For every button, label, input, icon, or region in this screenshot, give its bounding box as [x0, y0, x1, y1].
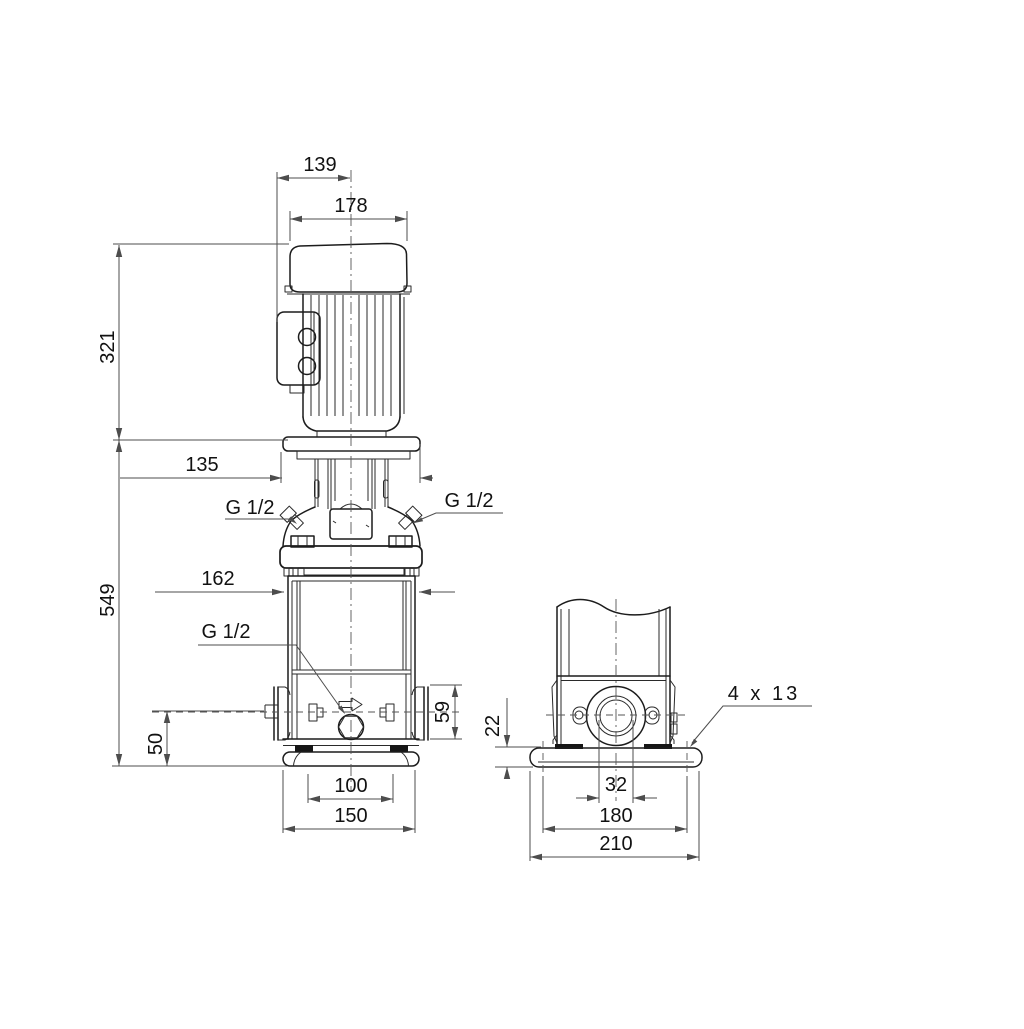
dim-139-label: 139 — [303, 154, 336, 176]
plug-label-drain: G 1/2 — [202, 621, 251, 643]
break-line — [557, 600, 670, 615]
dim-549-label: 549 — [97, 583, 119, 616]
dim-162-label: 162 — [201, 568, 234, 590]
motor-stool-plate — [283, 437, 420, 451]
dim-59-label: 59 — [432, 701, 454, 723]
dim-4x13-label: 4 x 13 — [728, 683, 800, 705]
port-flange-left — [265, 687, 290, 740]
plug-label-right: G 1/2 — [445, 490, 494, 512]
dim-178-label: 178 — [334, 195, 367, 217]
motor-bottom-bell — [303, 417, 400, 431]
chamber-sleeve — [288, 568, 415, 739]
front-view-pump-outline — [152, 170, 462, 792]
leader-arrow-bolt-hole — [690, 739, 697, 747]
dim-32-label: 32 — [605, 774, 627, 796]
dim-180-label: 180 — [599, 805, 632, 827]
side-plug-left — [309, 704, 317, 721]
cable-entry-hole-bottom — [299, 358, 316, 375]
side-plug-right — [386, 704, 394, 721]
dim-210-label: 210 — [599, 833, 632, 855]
drawing-canvas: 139 178 321 549 135 162 G 1/2 G 1/2 G — [0, 0, 1024, 1024]
dim-135-label: 135 — [185, 454, 218, 476]
dim-100-label: 100 — [334, 775, 367, 797]
dim-321-label: 321 — [97, 330, 119, 363]
motor-cap — [290, 244, 407, 293]
dim-22-label: 22 — [482, 715, 504, 737]
dimension-annotations: 139 178 321 549 135 162 G 1/2 G 1/2 G — [97, 154, 812, 861]
gasket-pad-right — [390, 745, 408, 752]
gasket-pad-left — [295, 745, 313, 752]
side-view-base — [530, 599, 702, 801]
dim-50-label: 50 — [145, 733, 167, 755]
pump-dimensional-drawing: 139 178 321 549 135 162 G 1/2 G 1/2 G — [0, 0, 1024, 1024]
dim-150-label: 150 — [334, 805, 367, 827]
cable-entry-hole-top — [299, 329, 316, 346]
plug-label-left: G 1/2 — [226, 497, 275, 519]
